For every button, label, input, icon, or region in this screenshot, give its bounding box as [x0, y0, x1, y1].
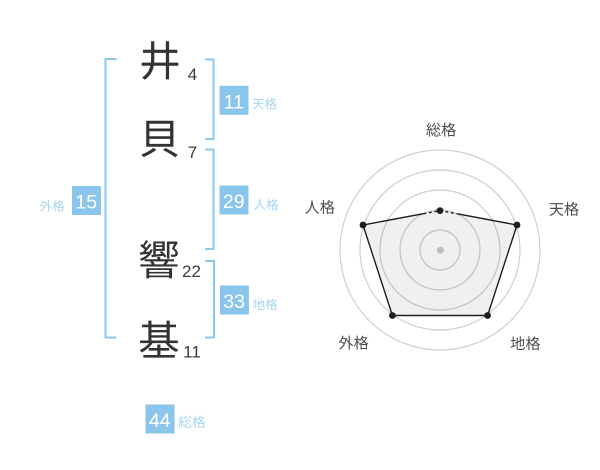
svg-text:4: 4: [188, 65, 197, 84]
svg-text:44: 44: [149, 410, 171, 432]
svg-text:7: 7: [188, 143, 197, 162]
svg-text:11: 11: [224, 91, 244, 113]
svg-text:33: 33: [223, 291, 245, 313]
svg-text:29: 29: [223, 191, 245, 213]
svg-text:15: 15: [75, 192, 97, 214]
svg-text:22: 22: [182, 262, 201, 281]
svg-text:11: 11: [183, 343, 201, 362]
